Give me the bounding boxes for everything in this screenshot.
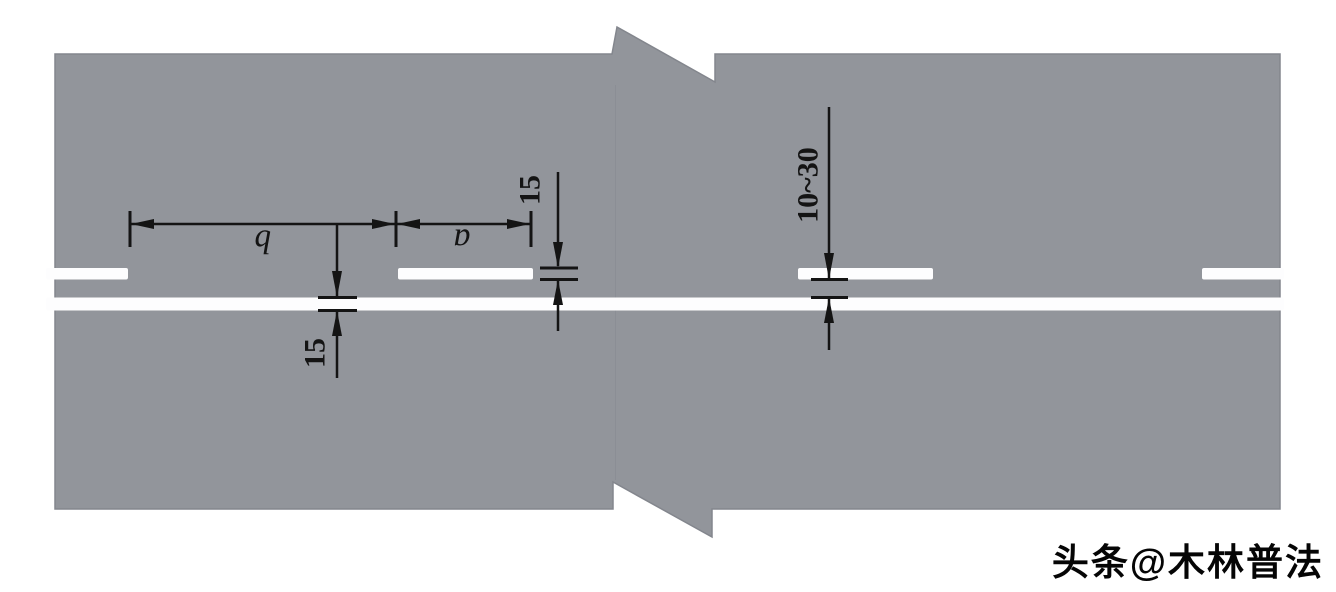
watermark-text: 头条@木林普法 xyxy=(1052,532,1324,586)
road-surface xyxy=(55,27,1280,537)
segment-length-label: a xyxy=(454,222,471,259)
lane-dashed-segment-1 xyxy=(46,268,128,280)
road-marking-diagram: b a 15 15 10~30 头条@木林普法 xyxy=(0,0,1336,592)
lane-dashed-segment-4 xyxy=(1202,268,1284,280)
solid-line-width-label: 15 xyxy=(299,338,332,368)
diagram-svg: b a 15 15 10~30 xyxy=(0,0,1336,592)
lane-dashed-segment-2 xyxy=(398,268,533,280)
dashed-line-width-label: 15 xyxy=(514,175,547,205)
lane-dashed-segment-3 xyxy=(798,268,933,280)
center-solid-line xyxy=(46,298,1284,311)
gap-length-label: b xyxy=(255,223,272,260)
line-spacing-label: 10~30 xyxy=(792,147,825,223)
